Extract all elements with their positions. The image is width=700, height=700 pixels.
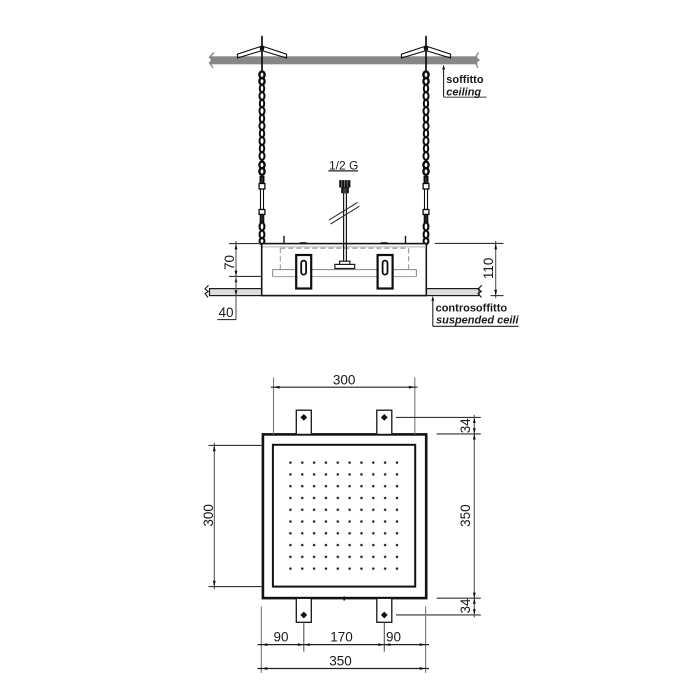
svg-text:300: 300	[333, 373, 356, 388]
svg-text:controsoffitto: controsoffitto	[436, 303, 508, 315]
svg-text:350: 350	[329, 654, 352, 669]
svg-text:90: 90	[273, 630, 288, 645]
svg-text:34: 34	[458, 598, 473, 614]
svg-text:ceiling: ceiling	[446, 86, 481, 98]
svg-text:soffitto: soffitto	[446, 74, 484, 86]
svg-text:34: 34	[458, 418, 473, 434]
svg-text:1/2 G: 1/2 G	[329, 158, 358, 172]
svg-text:90: 90	[386, 630, 401, 645]
svg-text:110: 110	[481, 258, 496, 280]
svg-text:300: 300	[201, 504, 216, 527]
svg-text:70: 70	[222, 255, 237, 270]
svg-text:170: 170	[330, 630, 353, 645]
svg-text:350: 350	[458, 504, 473, 527]
svg-text:40: 40	[219, 305, 234, 320]
svg-text:suspended ceili: suspended ceili	[436, 315, 519, 327]
